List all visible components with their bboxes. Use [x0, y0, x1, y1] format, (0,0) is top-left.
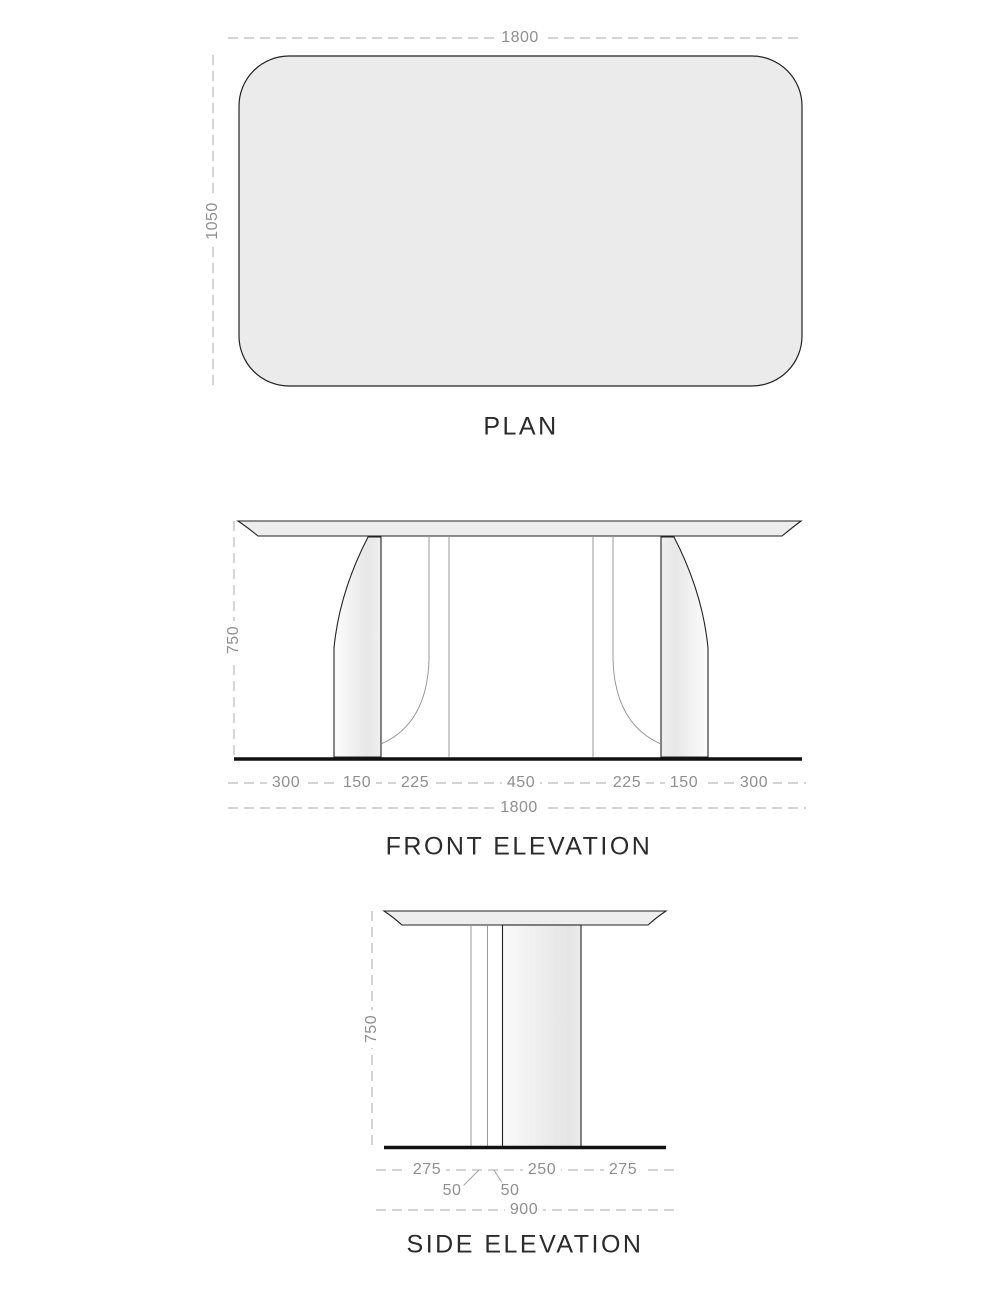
front-leg-right [661, 537, 708, 757]
side-pedestal [503, 925, 582, 1147]
side-leader-left [463, 1170, 479, 1186]
side-tabletop [384, 911, 666, 925]
front-overall-dim-label: 1800 [495, 799, 543, 817]
plan-depth-dim-label: 1050 [204, 197, 222, 245]
front-leg-left-inner-curve [381, 537, 429, 744]
side-overall-dim-label: 900 [505, 1201, 543, 1219]
front-elevation-title: FRONT ELEVATION [386, 833, 653, 862]
side-segment-dim-label: 275 [408, 1161, 446, 1179]
side-elevation-title: SIDE ELEVATION [407, 1231, 644, 1260]
side-leg-thickness-label: 50 [441, 1182, 464, 1200]
front-segment-dim-label: 450 [502, 774, 540, 792]
side-segment-dim-label: 250 [523, 1161, 561, 1179]
plan-width-dim-label: 1800 [496, 29, 544, 47]
front-segment-dim-label: 225 [396, 774, 434, 792]
front-segment-dim-label: 300 [267, 774, 305, 792]
plan-tabletop-outline [239, 56, 802, 386]
drawing-geometry [0, 0, 1006, 1302]
front-leg-left [334, 537, 381, 757]
front-segment-dim-label: 300 [735, 774, 773, 792]
front-leg-right-inner-curve [613, 537, 661, 744]
front-segment-dim-label: 150 [665, 774, 703, 792]
technical-drawing-sheet: 1800 1050 PLAN 750 300 150 225 450 225 1… [0, 0, 1006, 1302]
front-tabletop [238, 521, 801, 536]
front-height-dim-label: 750 [225, 621, 243, 659]
side-segment-dim-label: 275 [604, 1161, 642, 1179]
front-segment-dim-label: 150 [338, 774, 376, 792]
front-segment-dim-label: 225 [608, 774, 646, 792]
plan-view-title: PLAN [483, 413, 558, 442]
side-leg-thickness-label: 50 [499, 1182, 522, 1200]
side-height-dim-label: 750 [363, 1010, 381, 1048]
